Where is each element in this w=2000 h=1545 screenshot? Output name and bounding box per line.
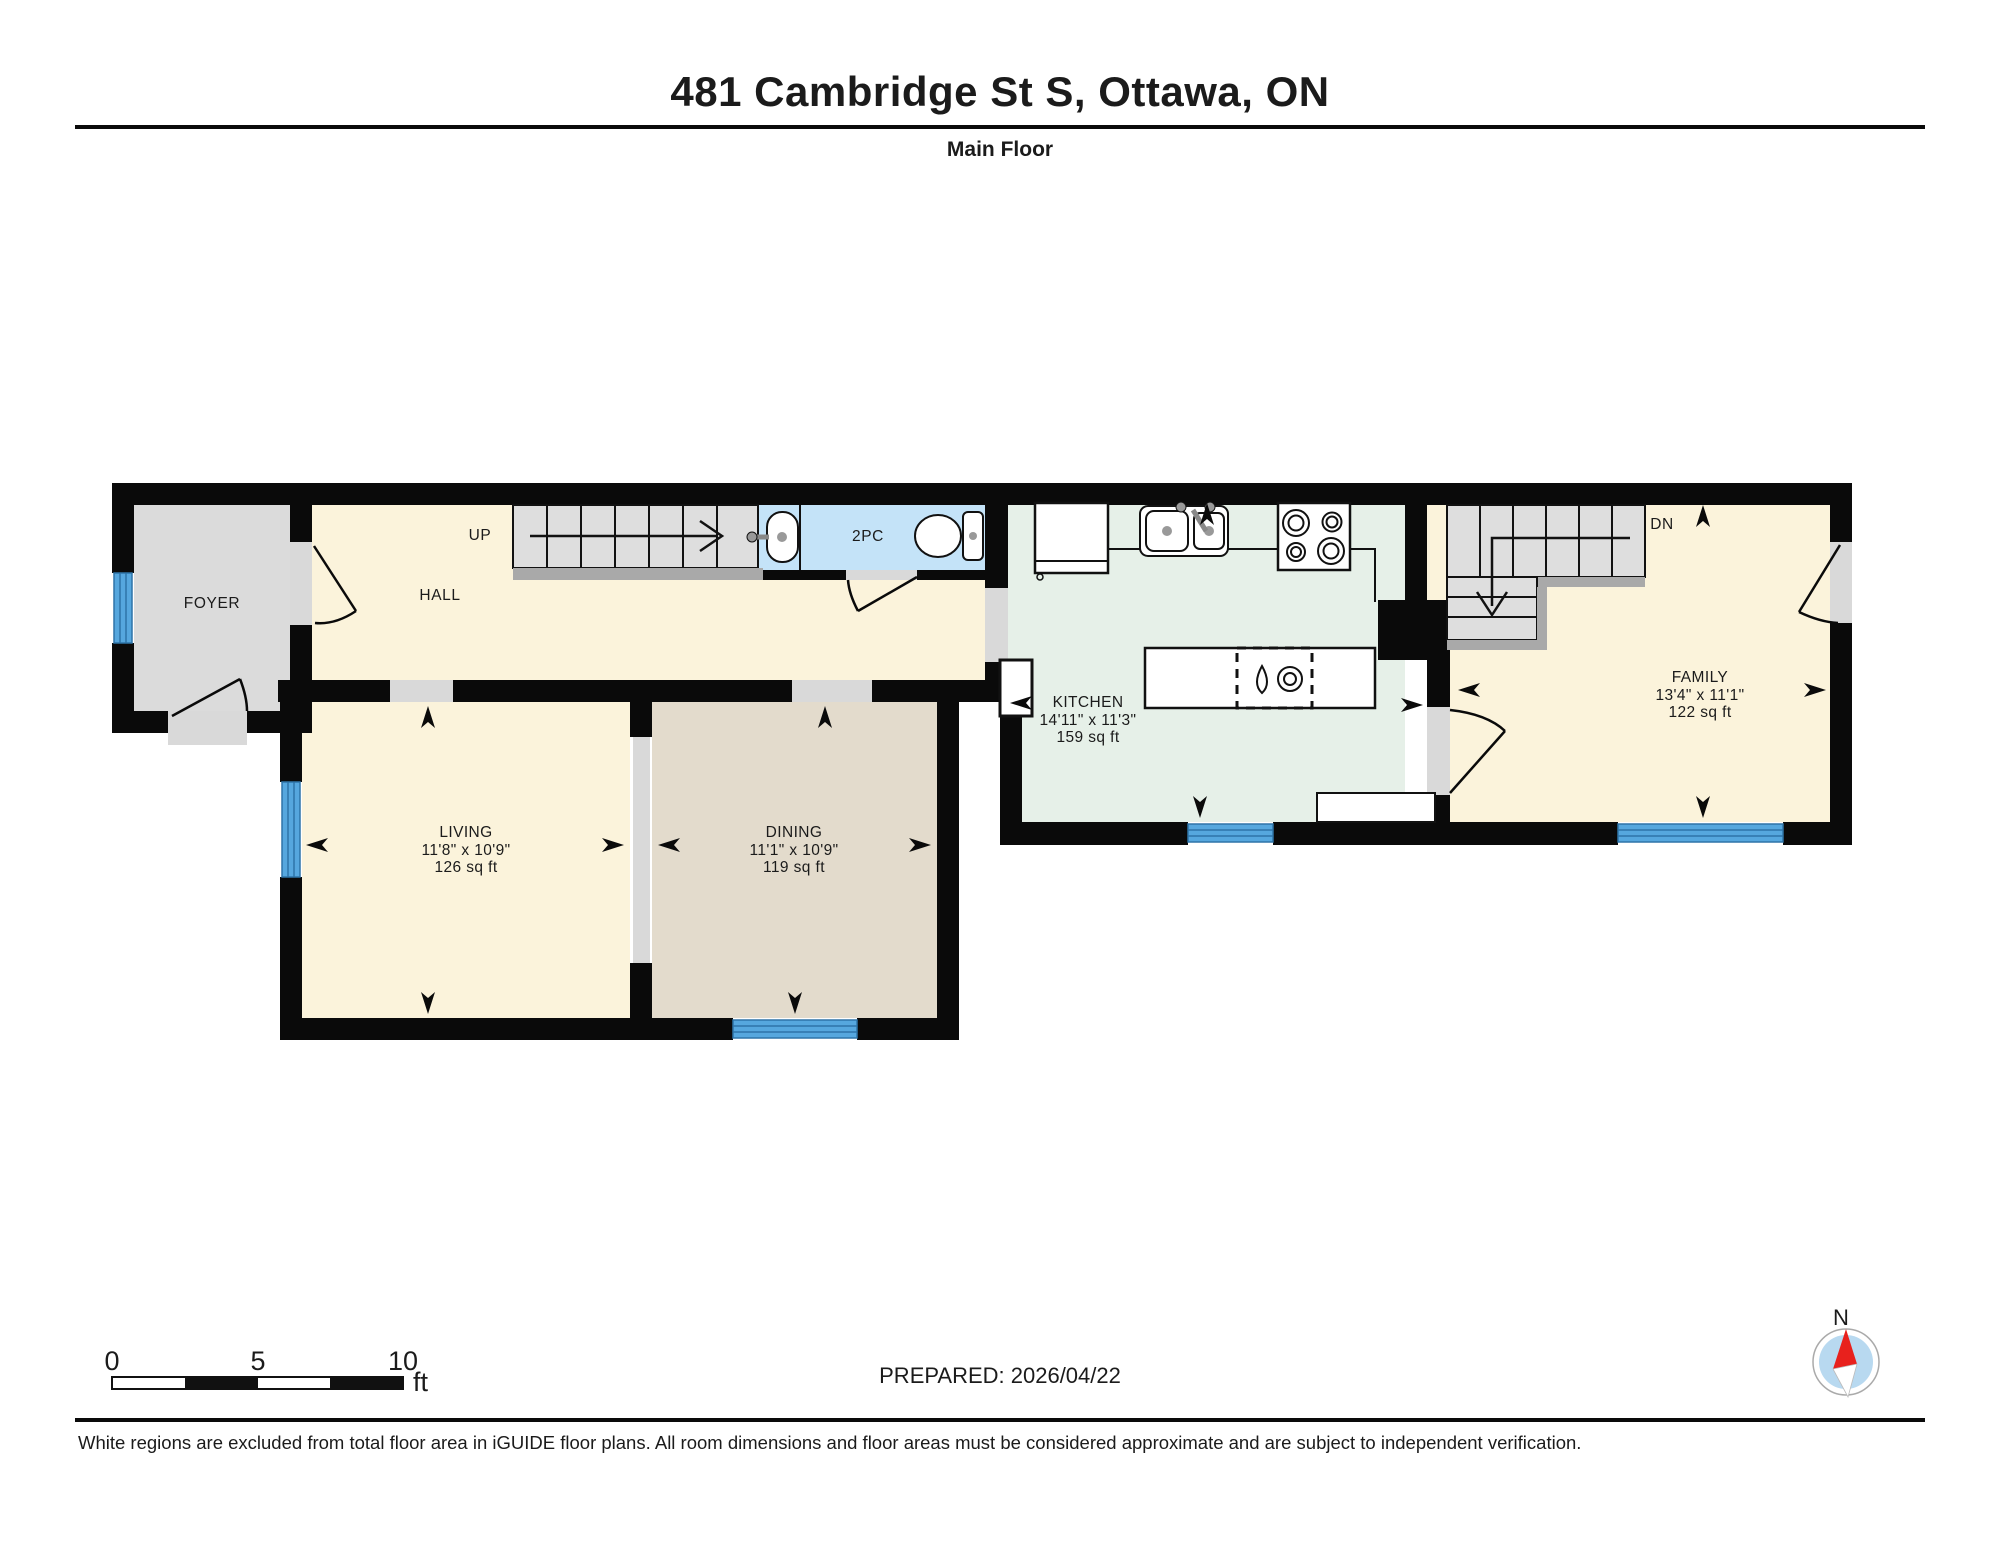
toilet-icon: [915, 512, 983, 560]
room-label-dining: DINING 11'1" x 10'9" 119 sq ft: [749, 824, 838, 877]
room-dimensions: 14'11" x 11'3": [1040, 712, 1137, 730]
prepared-date: PREPARED: 2026/04/22: [879, 1363, 1121, 1389]
family-window-icon: [1618, 824, 1783, 842]
bath-door-opening: [846, 570, 917, 580]
dining-window-icon: [733, 1020, 857, 1038]
living-dining-opening: [633, 737, 650, 963]
room-dimensions: 13'4" x 11'1": [1655, 687, 1744, 705]
compass-north-label: N: [1833, 1305, 1849, 1331]
title-rule: [75, 125, 1925, 129]
room-label-family: FAMILY 13'4" x 11'1" 122 sq ft: [1655, 669, 1744, 722]
room-label-foyer: FOYER: [184, 595, 240, 613]
room-dimensions: 11'8" x 10'9": [421, 842, 510, 860]
scale-unit: ft: [413, 1367, 428, 1398]
stairs-up-label: UP: [469, 527, 492, 545]
room-name: FAMILY: [1655, 669, 1744, 687]
disclaimer-text: White regions are excluded from total fl…: [78, 1432, 1581, 1454]
room-label-hall: HALL: [419, 587, 460, 605]
scale-tick-0: 0: [104, 1346, 119, 1377]
compass-icon: [1813, 1329, 1879, 1397]
up-stairs-icon: [513, 505, 763, 580]
hall-living-opening: [390, 680, 453, 702]
hall-kitchen-opening: [985, 588, 1008, 662]
stairs-down-label: DN: [1650, 516, 1674, 534]
room-area: 122 sq ft: [1655, 704, 1744, 722]
room-label-bath: 2PC: [852, 528, 884, 546]
floor-plan-page: 481 Cambridge St S, Ottawa, ON Main Floo…: [0, 0, 2000, 1545]
room-name: LIVING: [421, 824, 510, 842]
entry-threshold: [168, 711, 247, 745]
room-area: 119 sq ft: [749, 859, 838, 877]
island: [1145, 648, 1375, 708]
counter-sw: [1317, 793, 1435, 822]
page-title: 481 Cambridge St S, Ottawa, ON: [670, 68, 1329, 116]
room-label-kitchen: KITCHEN 14'11" x 11'3" 159 sq ft: [1040, 694, 1137, 747]
scale-tick-5: 5: [250, 1346, 265, 1377]
foyer-hall-opening: [290, 542, 312, 625]
fridge-icon: [1035, 503, 1108, 580]
foyer-window-icon: [114, 573, 132, 643]
room-name: DINING: [749, 824, 838, 842]
kitchen-window-icon: [1188, 824, 1273, 842]
room-label-living: LIVING 11'8" x 10'9" 126 sq ft: [421, 824, 510, 877]
footer-rule: [75, 1418, 1925, 1422]
room-area: 126 sq ft: [421, 859, 510, 877]
room-area: 159 sq ft: [1040, 729, 1137, 747]
floor-plan: [0, 0, 2000, 1545]
room-name: KITCHEN: [1040, 694, 1137, 712]
scale-bar: [112, 1377, 403, 1389]
room-dimensions: 11'1" x 10'9": [749, 842, 838, 860]
stove-icon: [1278, 503, 1350, 570]
kitchen-family-opening: [1427, 707, 1450, 795]
hall-dining-opening: [792, 680, 872, 702]
living-window-icon: [282, 782, 300, 877]
floor-label: Main Floor: [947, 138, 1053, 162]
kitchen-sink-icon: [1140, 502, 1228, 556]
